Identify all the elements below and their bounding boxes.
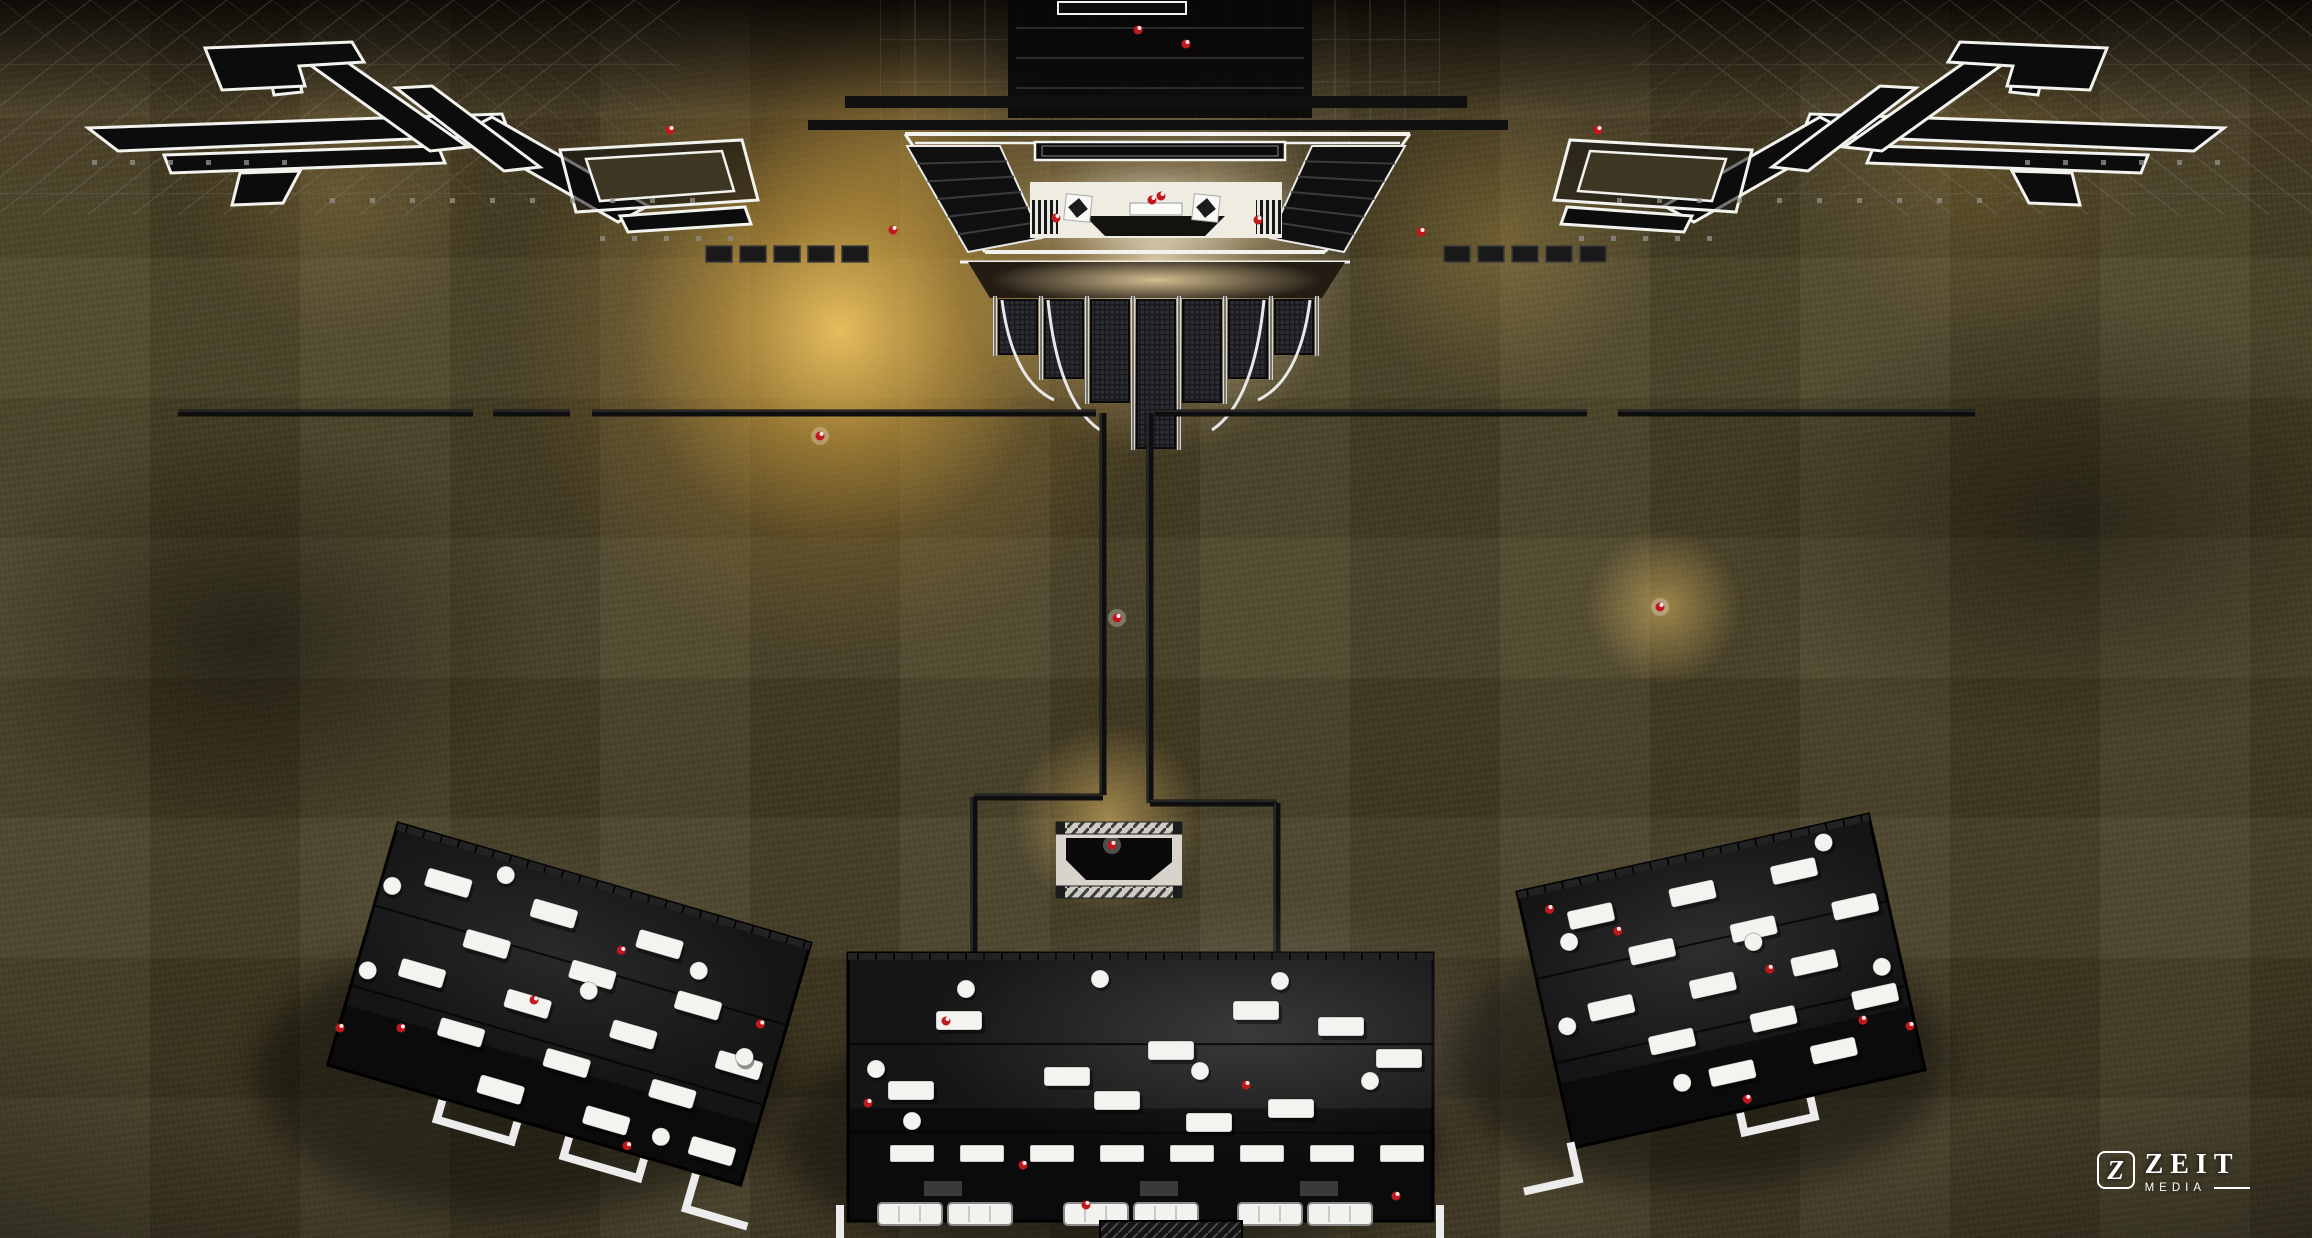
banquet-table <box>1044 1067 1090 1086</box>
light-fixture <box>1777 198 1782 203</box>
light-fixture <box>130 160 135 165</box>
light-fixture <box>1643 236 1648 241</box>
truss-beam <box>845 96 1467 108</box>
light-fixture <box>2177 160 2182 165</box>
cocktail-table <box>1191 1062 1209 1080</box>
person-marker <box>666 126 675 135</box>
light-fixture <box>1817 198 1822 203</box>
light-fixture <box>610 198 615 203</box>
foh-platform <box>1056 822 1182 898</box>
brand-logo-text: ZEIT MEDIA <box>2145 1151 2250 1194</box>
light-fixture <box>244 160 249 165</box>
bar-counter <box>1170 1145 1214 1162</box>
bar-counter <box>890 1145 934 1162</box>
light-fixture <box>1617 198 1622 203</box>
apron-led-panel <box>1091 300 1129 402</box>
cocktail-table <box>867 1060 885 1078</box>
cocktail-table <box>1361 1072 1379 1090</box>
person-marker <box>864 1099 873 1108</box>
entrance-rail <box>686 1174 758 1226</box>
truss-wing-panel <box>1867 146 2148 173</box>
person-marker <box>1108 609 1126 627</box>
bar-counter <box>1240 1145 1284 1162</box>
person-marker <box>1242 1081 1251 1090</box>
banquet-table <box>1148 1041 1194 1060</box>
light-fixture <box>2063 160 2068 165</box>
equipment-box <box>1444 246 1470 262</box>
light-fixture <box>1675 236 1680 241</box>
light-fixture <box>490 198 495 203</box>
person-marker <box>1134 26 1143 35</box>
cocktail-table <box>957 980 975 998</box>
service-box <box>924 1181 962 1196</box>
bar-counter <box>1030 1145 1074 1162</box>
stage-angle-panel <box>1192 194 1221 223</box>
brand-tagline: MEDIA <box>2145 1182 2206 1194</box>
venue-aerial-render: Z ZEIT MEDIA <box>0 0 2312 1238</box>
bar-counter <box>1100 1145 1144 1162</box>
light-fixture <box>92 160 97 165</box>
person-marker <box>811 427 829 445</box>
equipment-box <box>706 246 732 262</box>
light-fixture <box>2025 160 2030 165</box>
lounge-sofa <box>878 1203 942 1225</box>
equipment-box <box>842 246 868 262</box>
cocktail-table <box>1271 972 1289 990</box>
light-fixture <box>1897 198 1902 203</box>
stage-header-screen <box>1035 142 1285 160</box>
light-fixture <box>450 198 455 203</box>
light-fixture <box>2139 160 2144 165</box>
brand-name: ZEIT <box>2145 1151 2250 1179</box>
person-marker <box>889 226 898 235</box>
cocktail-table <box>903 1112 921 1130</box>
upstage-screen <box>1058 2 1186 14</box>
equipment-box <box>1580 246 1606 262</box>
person-marker <box>1182 40 1191 49</box>
dj-booth <box>1130 203 1182 215</box>
light-fixture <box>410 198 415 203</box>
apron-led-panel <box>1275 300 1313 354</box>
light-fixture <box>1579 236 1584 241</box>
light-fixture <box>1697 198 1702 203</box>
equipment-box <box>808 246 834 262</box>
light-fixture <box>282 160 287 165</box>
person-marker <box>1594 126 1603 135</box>
light-fixture <box>650 198 655 203</box>
light-fixture <box>530 198 535 203</box>
person-marker <box>1651 598 1669 616</box>
brand-tagline-dash <box>2214 1187 2250 1189</box>
truss-wing-panel <box>232 171 300 205</box>
lounge-sofa <box>1308 1203 1372 1225</box>
apron-led-panel <box>1183 300 1221 402</box>
truss-wing-panel <box>2012 171 2080 205</box>
light-fixture <box>1657 198 1662 203</box>
lounge-sofa <box>1238 1203 1302 1225</box>
light-fixture <box>1937 198 1942 203</box>
stage-angle-panel <box>1064 194 1093 223</box>
cocktail-table <box>1091 970 1109 988</box>
banquet-table <box>1094 1091 1140 1110</box>
person-marker <box>1019 1161 1028 1170</box>
person-marker <box>1148 196 1157 205</box>
person-marker <box>1103 836 1121 854</box>
light-fixture <box>1707 236 1712 241</box>
foh-truss-rail <box>1056 886 1182 898</box>
person-marker <box>1052 214 1061 223</box>
light-fixture <box>2101 160 2106 165</box>
person-marker <box>336 1024 345 1033</box>
light-fixture <box>206 160 211 165</box>
service-box <box>1300 1181 1338 1196</box>
equipment-box <box>1512 246 1538 262</box>
person-marker <box>1417 228 1426 237</box>
light-fixture <box>664 236 669 241</box>
equipment-box <box>774 246 800 262</box>
light-fixture <box>1857 198 1862 203</box>
person-marker <box>942 1017 951 1026</box>
entrance-ramp <box>1100 1221 1242 1238</box>
person-marker <box>1254 216 1263 225</box>
light-fixture <box>168 160 173 165</box>
person-marker <box>1392 1192 1401 1201</box>
banquet-table <box>1376 1049 1422 1068</box>
banquet-table <box>1233 1001 1279 1020</box>
light-fixture <box>370 198 375 203</box>
light-fixture <box>330 198 335 203</box>
light-fixture <box>728 236 733 241</box>
brand-logo: Z ZEIT MEDIA <box>2097 1151 2250 1194</box>
light-fixture <box>570 198 575 203</box>
banquet-table <box>888 1081 934 1100</box>
light-fixture <box>696 236 701 241</box>
equipment-box <box>1546 246 1572 262</box>
person-marker <box>1906 1022 1915 1031</box>
light-fixture <box>632 236 637 241</box>
brand-logo-icon: Z <box>2097 1151 2135 1189</box>
light-fixture <box>600 236 605 241</box>
venue-render <box>0 0 2312 1238</box>
truss-beam <box>808 120 1508 130</box>
brand-logo-letter: Z <box>2107 1157 2124 1184</box>
brand-tagline-row: MEDIA <box>2145 1182 2250 1194</box>
equipment-box <box>740 246 766 262</box>
bar-counter <box>960 1145 1004 1162</box>
light-fixture <box>2215 160 2220 165</box>
person-marker <box>1082 1201 1091 1210</box>
tent-edge-truss <box>848 953 1433 960</box>
light-fixture <box>690 198 695 203</box>
light-fixture <box>1737 198 1742 203</box>
banquet-table <box>1186 1113 1232 1132</box>
banquet-table <box>1318 1017 1364 1036</box>
light-fixture <box>1977 198 1982 203</box>
truss-wing-panel <box>164 146 445 173</box>
apron-led-panel <box>999 300 1037 354</box>
bar-counter <box>1310 1145 1354 1162</box>
equipment-box <box>1478 246 1504 262</box>
apron-led-panel <box>1137 300 1175 448</box>
foh-truss-rail <box>1056 822 1182 834</box>
guest-tent-center <box>840 898 1578 1238</box>
service-box <box>1140 1181 1178 1196</box>
bar-counter <box>1380 1145 1424 1162</box>
banquet-table <box>1268 1099 1314 1118</box>
light-fixture <box>1611 236 1616 241</box>
person-marker <box>1157 192 1166 201</box>
lounge-sofa <box>948 1203 1012 1225</box>
